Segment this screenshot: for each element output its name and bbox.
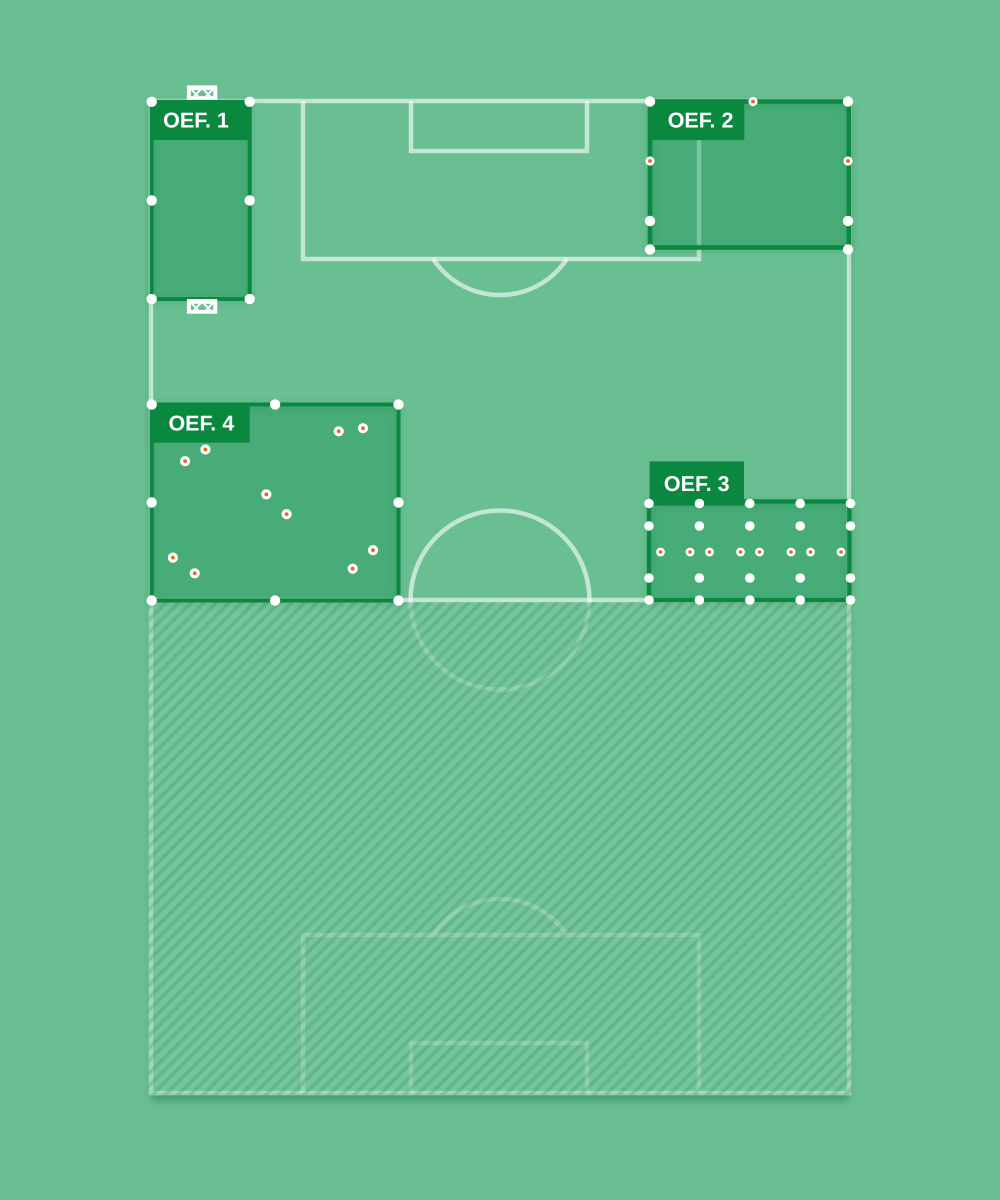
svg-text:OEF. 3: OEF. 3 (664, 472, 730, 496)
svg-text:OEF. 4: OEF. 4 (168, 411, 234, 435)
svg-text:OEF. 1: OEF. 1 (163, 109, 229, 133)
svg-text:OEF. 2: OEF. 2 (668, 109, 734, 133)
